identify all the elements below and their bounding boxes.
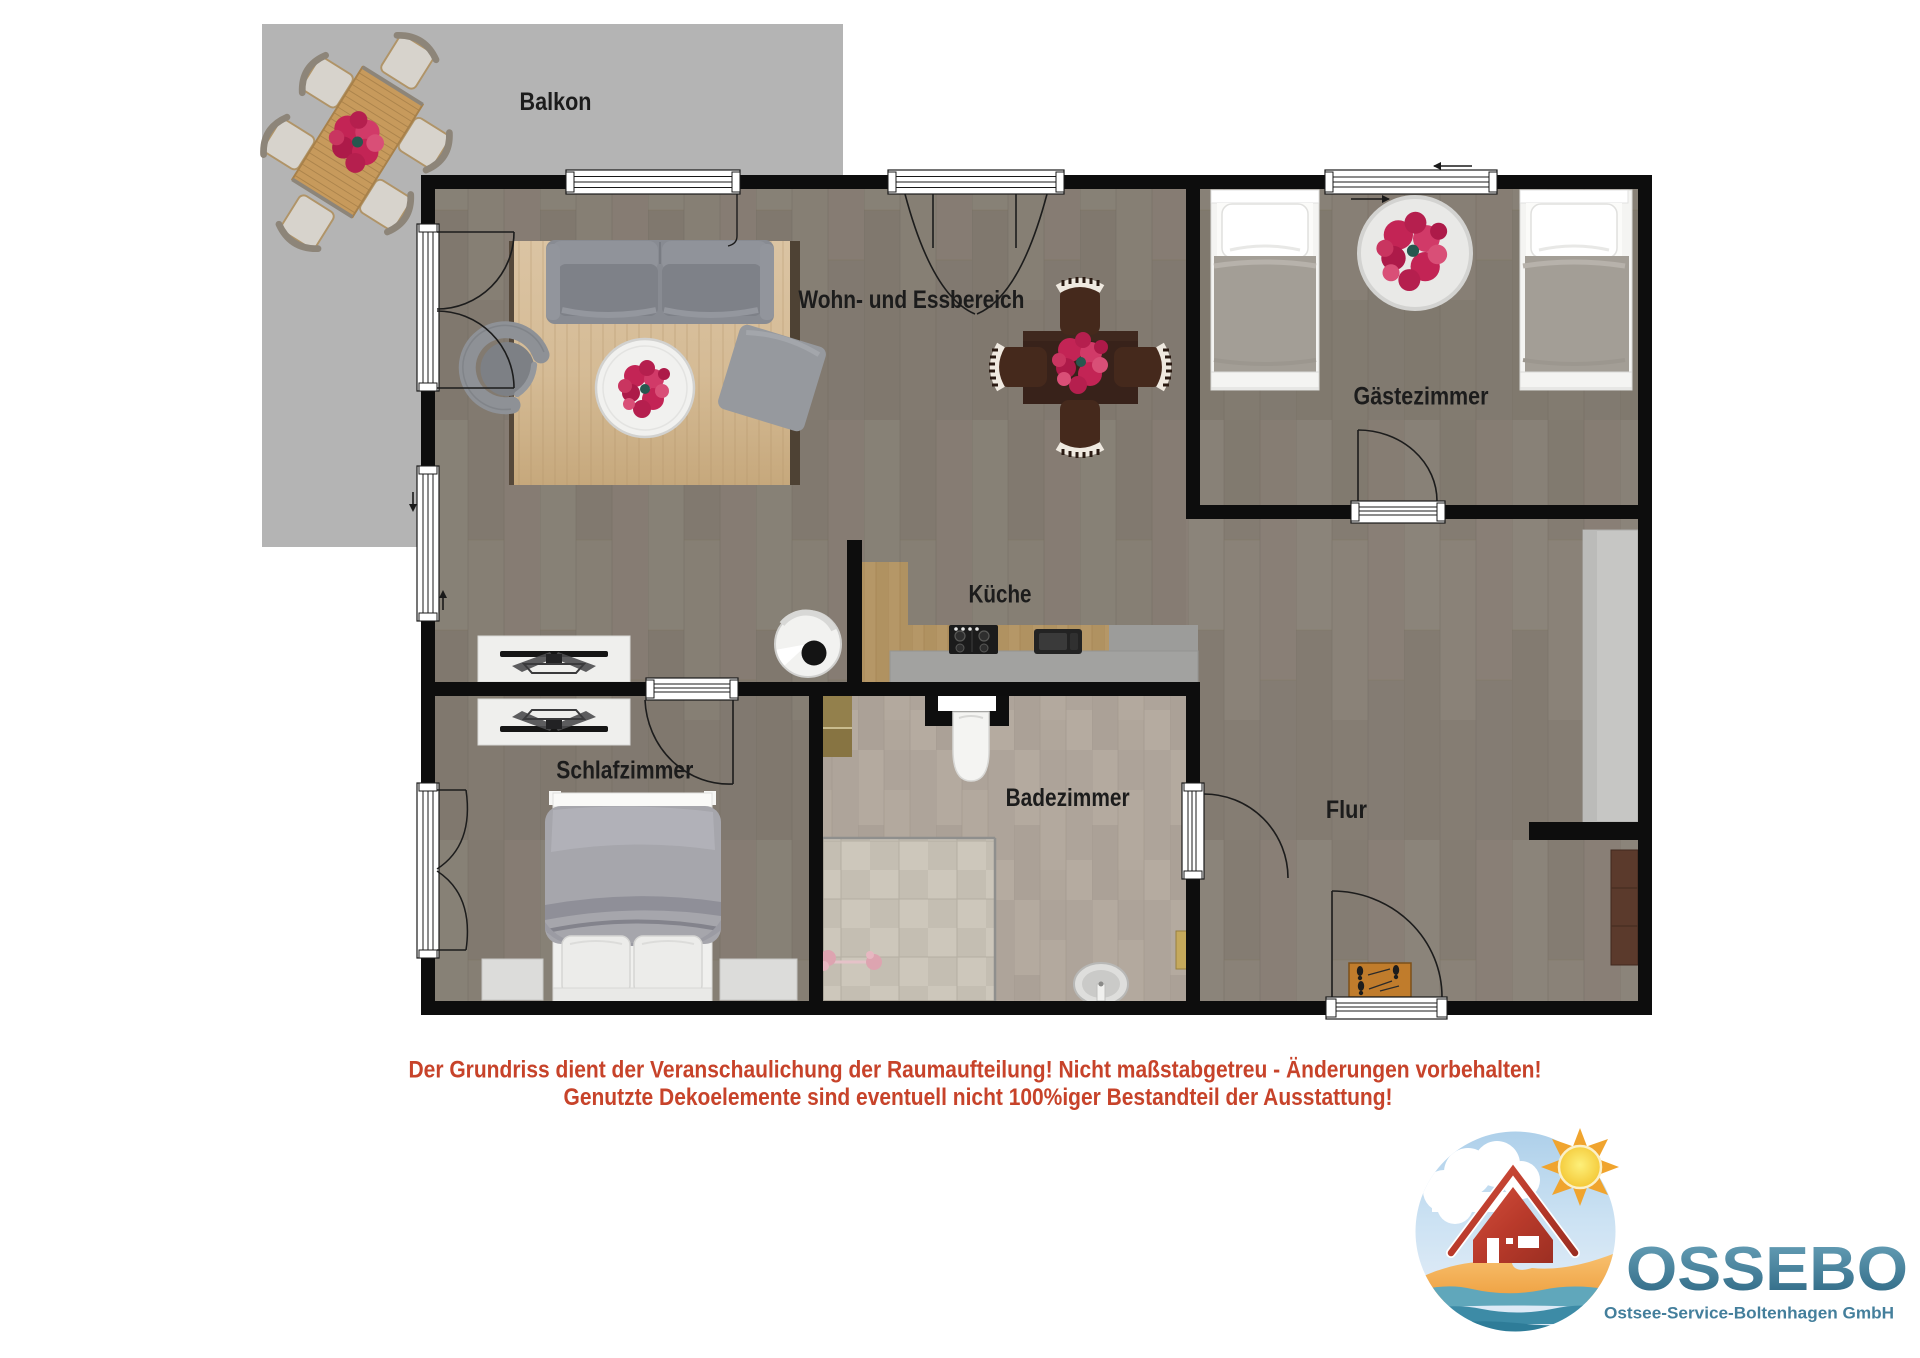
svg-text:OSSEBO: OSSEBO <box>1626 1235 1908 1304</box>
svg-text:Badezimmer: Badezimmer <box>1006 784 1130 812</box>
svg-text:Gästezimmer: Gästezimmer <box>1354 383 1489 411</box>
svg-text:Genutzte Dekoelemente sind eve: Genutzte Dekoelemente sind eventuell nic… <box>564 1084 1393 1111</box>
svg-text:Wohn- und Essbereich: Wohn- und Essbereich <box>798 286 1024 314</box>
svg-text:Balkon: Balkon <box>520 88 592 116</box>
svg-text:Flur: Flur <box>1326 796 1367 824</box>
svg-text:Küche: Küche <box>969 581 1032 609</box>
svg-text:Schlafzimmer: Schlafzimmer <box>556 757 693 785</box>
svg-text:Ostsee-Service-Boltenhagen Gmb: Ostsee-Service-Boltenhagen GmbH <box>1604 1304 1894 1323</box>
svg-text:Der Grundriss dient der Verans: Der Grundriss dient der Veranschaulichun… <box>409 1057 1542 1084</box>
